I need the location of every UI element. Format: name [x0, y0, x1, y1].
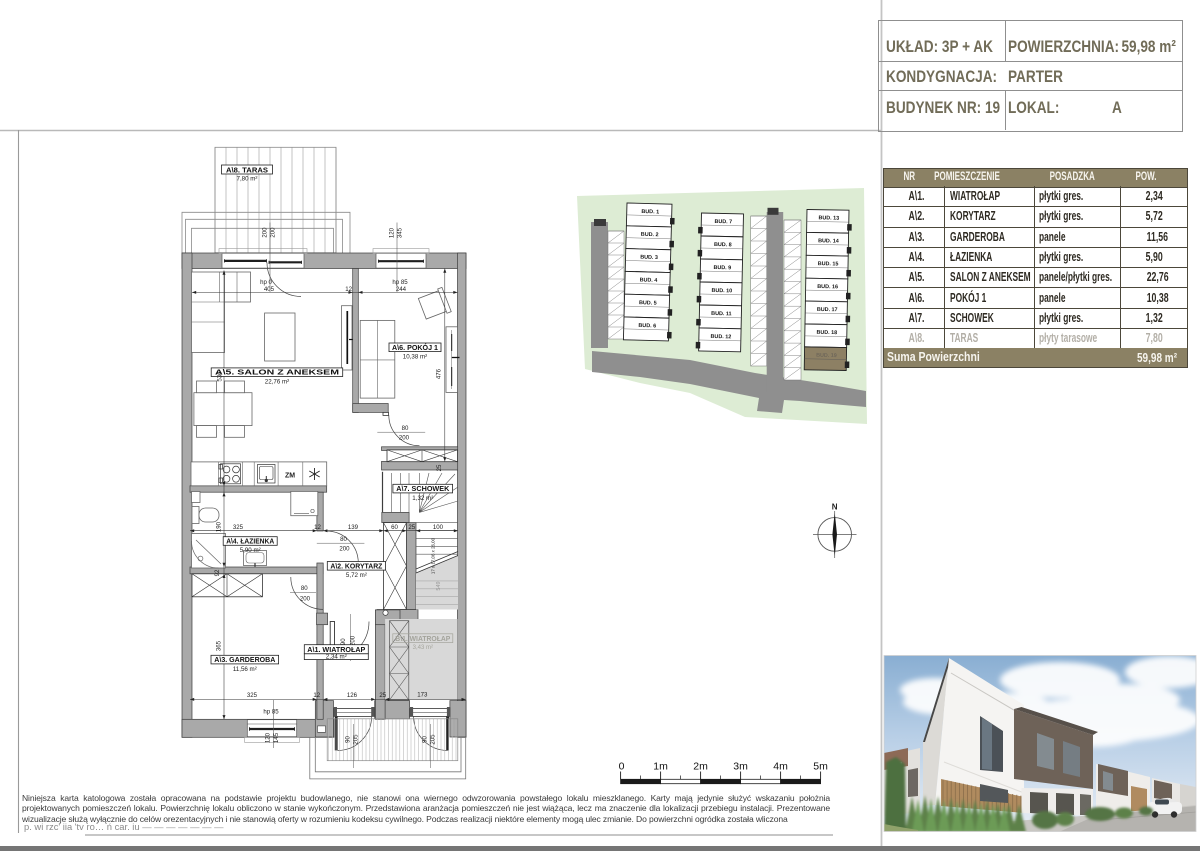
svg-text:hp 0: hp 0 [260, 279, 272, 286]
svg-text:N: N [832, 503, 838, 512]
svg-text:A\6. POKÓJ 1: A\6. POKÓJ 1 [392, 343, 438, 352]
svg-text:A\7. SCHOWEK: A\7. SCHOWEK [396, 485, 450, 493]
svg-text:BUD. 2: BUD. 2 [641, 232, 659, 238]
svg-text:25: 25 [436, 464, 443, 471]
svg-text:325: 325 [233, 524, 244, 531]
svg-text:10,38 m²: 10,38 m² [403, 354, 427, 361]
svg-text:80: 80 [301, 585, 308, 592]
svg-text:145: 145 [273, 732, 280, 743]
svg-text:12: 12 [345, 286, 352, 293]
svg-text:244: 244 [396, 286, 407, 293]
svg-text:BUD. 9: BUD. 9 [713, 265, 731, 271]
svg-text:BUD. 6: BUD. 6 [638, 323, 656, 329]
svg-text:200: 200 [270, 227, 277, 238]
svg-text:BUD. 12: BUD. 12 [711, 334, 732, 340]
svg-text:476: 476 [435, 368, 442, 379]
svg-text:BUD. 14: BUD. 14 [818, 238, 839, 244]
svg-text:17 x 17,06 x 26,00: 17 x 17,06 x 26,00 [431, 537, 436, 574]
svg-text:BUD. 8: BUD. 8 [714, 242, 732, 248]
svg-text:1,32 m²: 1,32 m² [412, 495, 433, 502]
svg-text:12: 12 [314, 524, 321, 531]
svg-text:5,72 m²: 5,72 m² [346, 572, 367, 579]
svg-text:ZM: ZM [285, 472, 295, 479]
svg-text:BUD. 3: BUD. 3 [640, 255, 658, 261]
svg-text:25: 25 [408, 524, 415, 531]
svg-text:5m: 5m [813, 761, 828, 773]
svg-text:A\8. TARAS: A\8. TARAS [226, 166, 268, 174]
svg-text:200: 200 [339, 546, 350, 553]
svg-text:BUD. 1: BUD. 1 [641, 209, 659, 215]
svg-text:BUD. 15: BUD. 15 [818, 261, 839, 267]
svg-text:0: 0 [619, 761, 625, 773]
svg-text:405: 405 [264, 286, 275, 293]
svg-text:25: 25 [379, 692, 386, 699]
svg-text:205: 205 [430, 734, 437, 745]
svg-text:5,90 m²: 5,90 m² [240, 547, 261, 554]
svg-text:7,80 m²: 7,80 m² [237, 176, 258, 183]
svg-text:BUD. 16: BUD. 16 [817, 284, 838, 290]
svg-text:3,43 m²: 3,43 m² [413, 645, 433, 651]
svg-text:BUD. 10: BUD. 10 [711, 288, 732, 294]
svg-text:205: 205 [353, 734, 360, 745]
svg-text:11,56 m²: 11,56 m² [233, 666, 257, 673]
svg-text:120: 120 [265, 732, 272, 743]
svg-text:3m: 3m [733, 761, 748, 773]
svg-text:B\1. WIATROŁAP: B\1. WIATROŁAP [395, 634, 450, 643]
svg-text:12: 12 [313, 692, 320, 699]
svg-text:345: 345 [397, 227, 404, 238]
svg-text:536: 536 [217, 371, 224, 382]
svg-text:BUD. 7: BUD. 7 [714, 219, 732, 225]
svg-text:325: 325 [247, 692, 258, 699]
svg-text:365: 365 [216, 640, 223, 651]
svg-text:126: 126 [347, 692, 358, 699]
svg-text:2,34 m²: 2,34 m² [326, 654, 347, 661]
svg-text:120: 120 [388, 227, 395, 238]
svg-text:BUD. 11: BUD. 11 [711, 311, 731, 317]
svg-text:90: 90 [421, 736, 428, 743]
svg-text:139: 139 [348, 524, 359, 531]
svg-text:60: 60 [391, 524, 398, 531]
svg-text:200: 200 [300, 596, 311, 603]
svg-text:2m: 2m [693, 761, 708, 773]
svg-text:A\3. GARDEROBA: A\3. GARDEROBA [214, 656, 275, 664]
svg-text:A\2. KORYTARZ: A\2. KORYTARZ [330, 562, 383, 570]
svg-text:hp 85: hp 85 [263, 709, 279, 716]
svg-text:BUD. 4: BUD. 4 [640, 277, 658, 283]
svg-text:90: 90 [344, 736, 351, 743]
svg-text:BUD. 17: BUD. 17 [817, 307, 838, 313]
svg-text:190: 190 [215, 521, 222, 532]
svg-text:200: 200 [399, 434, 410, 441]
svg-text:BUD. 5: BUD. 5 [639, 300, 657, 306]
svg-text:92: 92 [214, 569, 221, 576]
svg-text:200: 200 [261, 227, 268, 238]
svg-text:BUD. 19: BUD. 19 [816, 353, 837, 359]
svg-text:80: 80 [340, 536, 347, 543]
svg-text:22,76 m²: 22,76 m² [265, 378, 289, 385]
svg-text:1m: 1m [653, 761, 668, 773]
svg-text:BUD. 13: BUD. 13 [818, 215, 839, 221]
svg-text:A\5. SALON Z ANEKSEM: A\5. SALON Z ANEKSEM [215, 369, 339, 377]
svg-text:80: 80 [402, 425, 409, 432]
svg-text:90: 90 [340, 638, 347, 645]
svg-text:A\4. ŁAZIENKA: A\4. ŁAZIENKA [226, 538, 274, 546]
svg-text:549: 549 [436, 581, 442, 590]
svg-text:173: 173 [417, 692, 428, 699]
svg-text:BUD. 18: BUD. 18 [816, 330, 837, 336]
svg-text:100: 100 [433, 524, 444, 531]
svg-text:hp 85: hp 85 [392, 279, 408, 286]
svg-text:4m: 4m [773, 761, 788, 773]
